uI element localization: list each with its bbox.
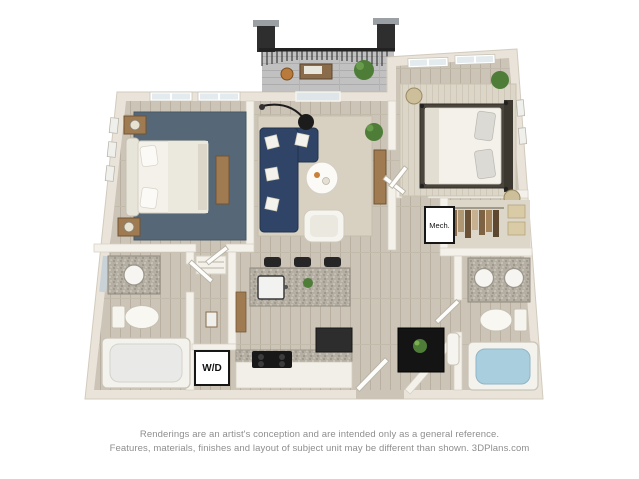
floor-plan-page: W/D Mech. Renderings are an artist's con… (0, 0, 639, 479)
arc-lamp-shade (298, 114, 314, 130)
bedroom1-bed (126, 138, 208, 216)
bedroom2-side-table-top (406, 88, 422, 104)
burner (279, 354, 285, 360)
balcony (253, 18, 399, 94)
bath1-tub (102, 338, 190, 388)
coffee-table-decor2 (323, 178, 330, 185)
closet-area (448, 200, 530, 248)
bath2-tub-water (476, 349, 530, 384)
entry-desk-plant (413, 339, 427, 353)
bath2-sink-right (505, 269, 524, 288)
bath1-sink (124, 265, 144, 285)
island-faucet (284, 285, 288, 289)
sofa-long-seat (260, 128, 298, 232)
disclaimer-line1: Renderings are an artist's conception an… (0, 428, 639, 442)
bedroom1-lamp-bottom (124, 222, 134, 232)
accent-chair-cushion (310, 215, 338, 237)
balcony-post-right-cap (373, 18, 399, 25)
mechanical-closet-label: Mech. (424, 206, 455, 244)
bath2-toilet (480, 309, 527, 331)
island-plant (303, 278, 313, 288)
living-room (258, 104, 386, 242)
mechanical-closet-label-text: Mech. (429, 221, 449, 230)
bedroom1-bench (216, 156, 229, 204)
balcony-bench-cushion (304, 66, 322, 74)
disclaimer-line2: Features, materials, finishes and layout… (0, 442, 639, 456)
burner (279, 361, 285, 367)
entry-desk-plant-highlight (415, 341, 420, 346)
bath1-toilet (112, 306, 159, 329)
balcony-plant (354, 60, 374, 80)
balcony-sliding-door (296, 92, 340, 101)
entry-opening (356, 390, 404, 399)
coffee-table (306, 162, 338, 194)
island-sink (258, 276, 284, 299)
balcony-post-right (377, 24, 395, 50)
refrigerator (316, 328, 352, 352)
bath2-sink-left (475, 269, 494, 288)
cooktop (252, 351, 292, 368)
washer-dryer-label-text: W/D (202, 363, 221, 374)
washer-dryer-label: W/D (194, 350, 230, 386)
balcony-plant-highlight (356, 62, 364, 70)
bath2-tub (468, 342, 538, 390)
bedroom2-plant (491, 71, 509, 89)
living-plant-highlight (367, 125, 374, 132)
burner (258, 354, 264, 360)
arc-lamp-base (259, 104, 265, 110)
bedroom1-lamp-top (130, 120, 140, 130)
floor-plan-image (0, 0, 639, 479)
hall-picture-frame (206, 312, 217, 327)
console-table (374, 150, 386, 204)
balcony-side-table (281, 68, 293, 80)
disclaimer: Renderings are an artist's conception an… (0, 428, 639, 455)
hall-console (236, 292, 246, 332)
bedroom2-bed (420, 100, 513, 192)
entry-chair (447, 333, 459, 365)
bar-stools (264, 257, 341, 267)
balcony-post-left-cap (253, 20, 279, 27)
coffee-table-decor1 (314, 172, 320, 178)
burner (258, 361, 264, 367)
